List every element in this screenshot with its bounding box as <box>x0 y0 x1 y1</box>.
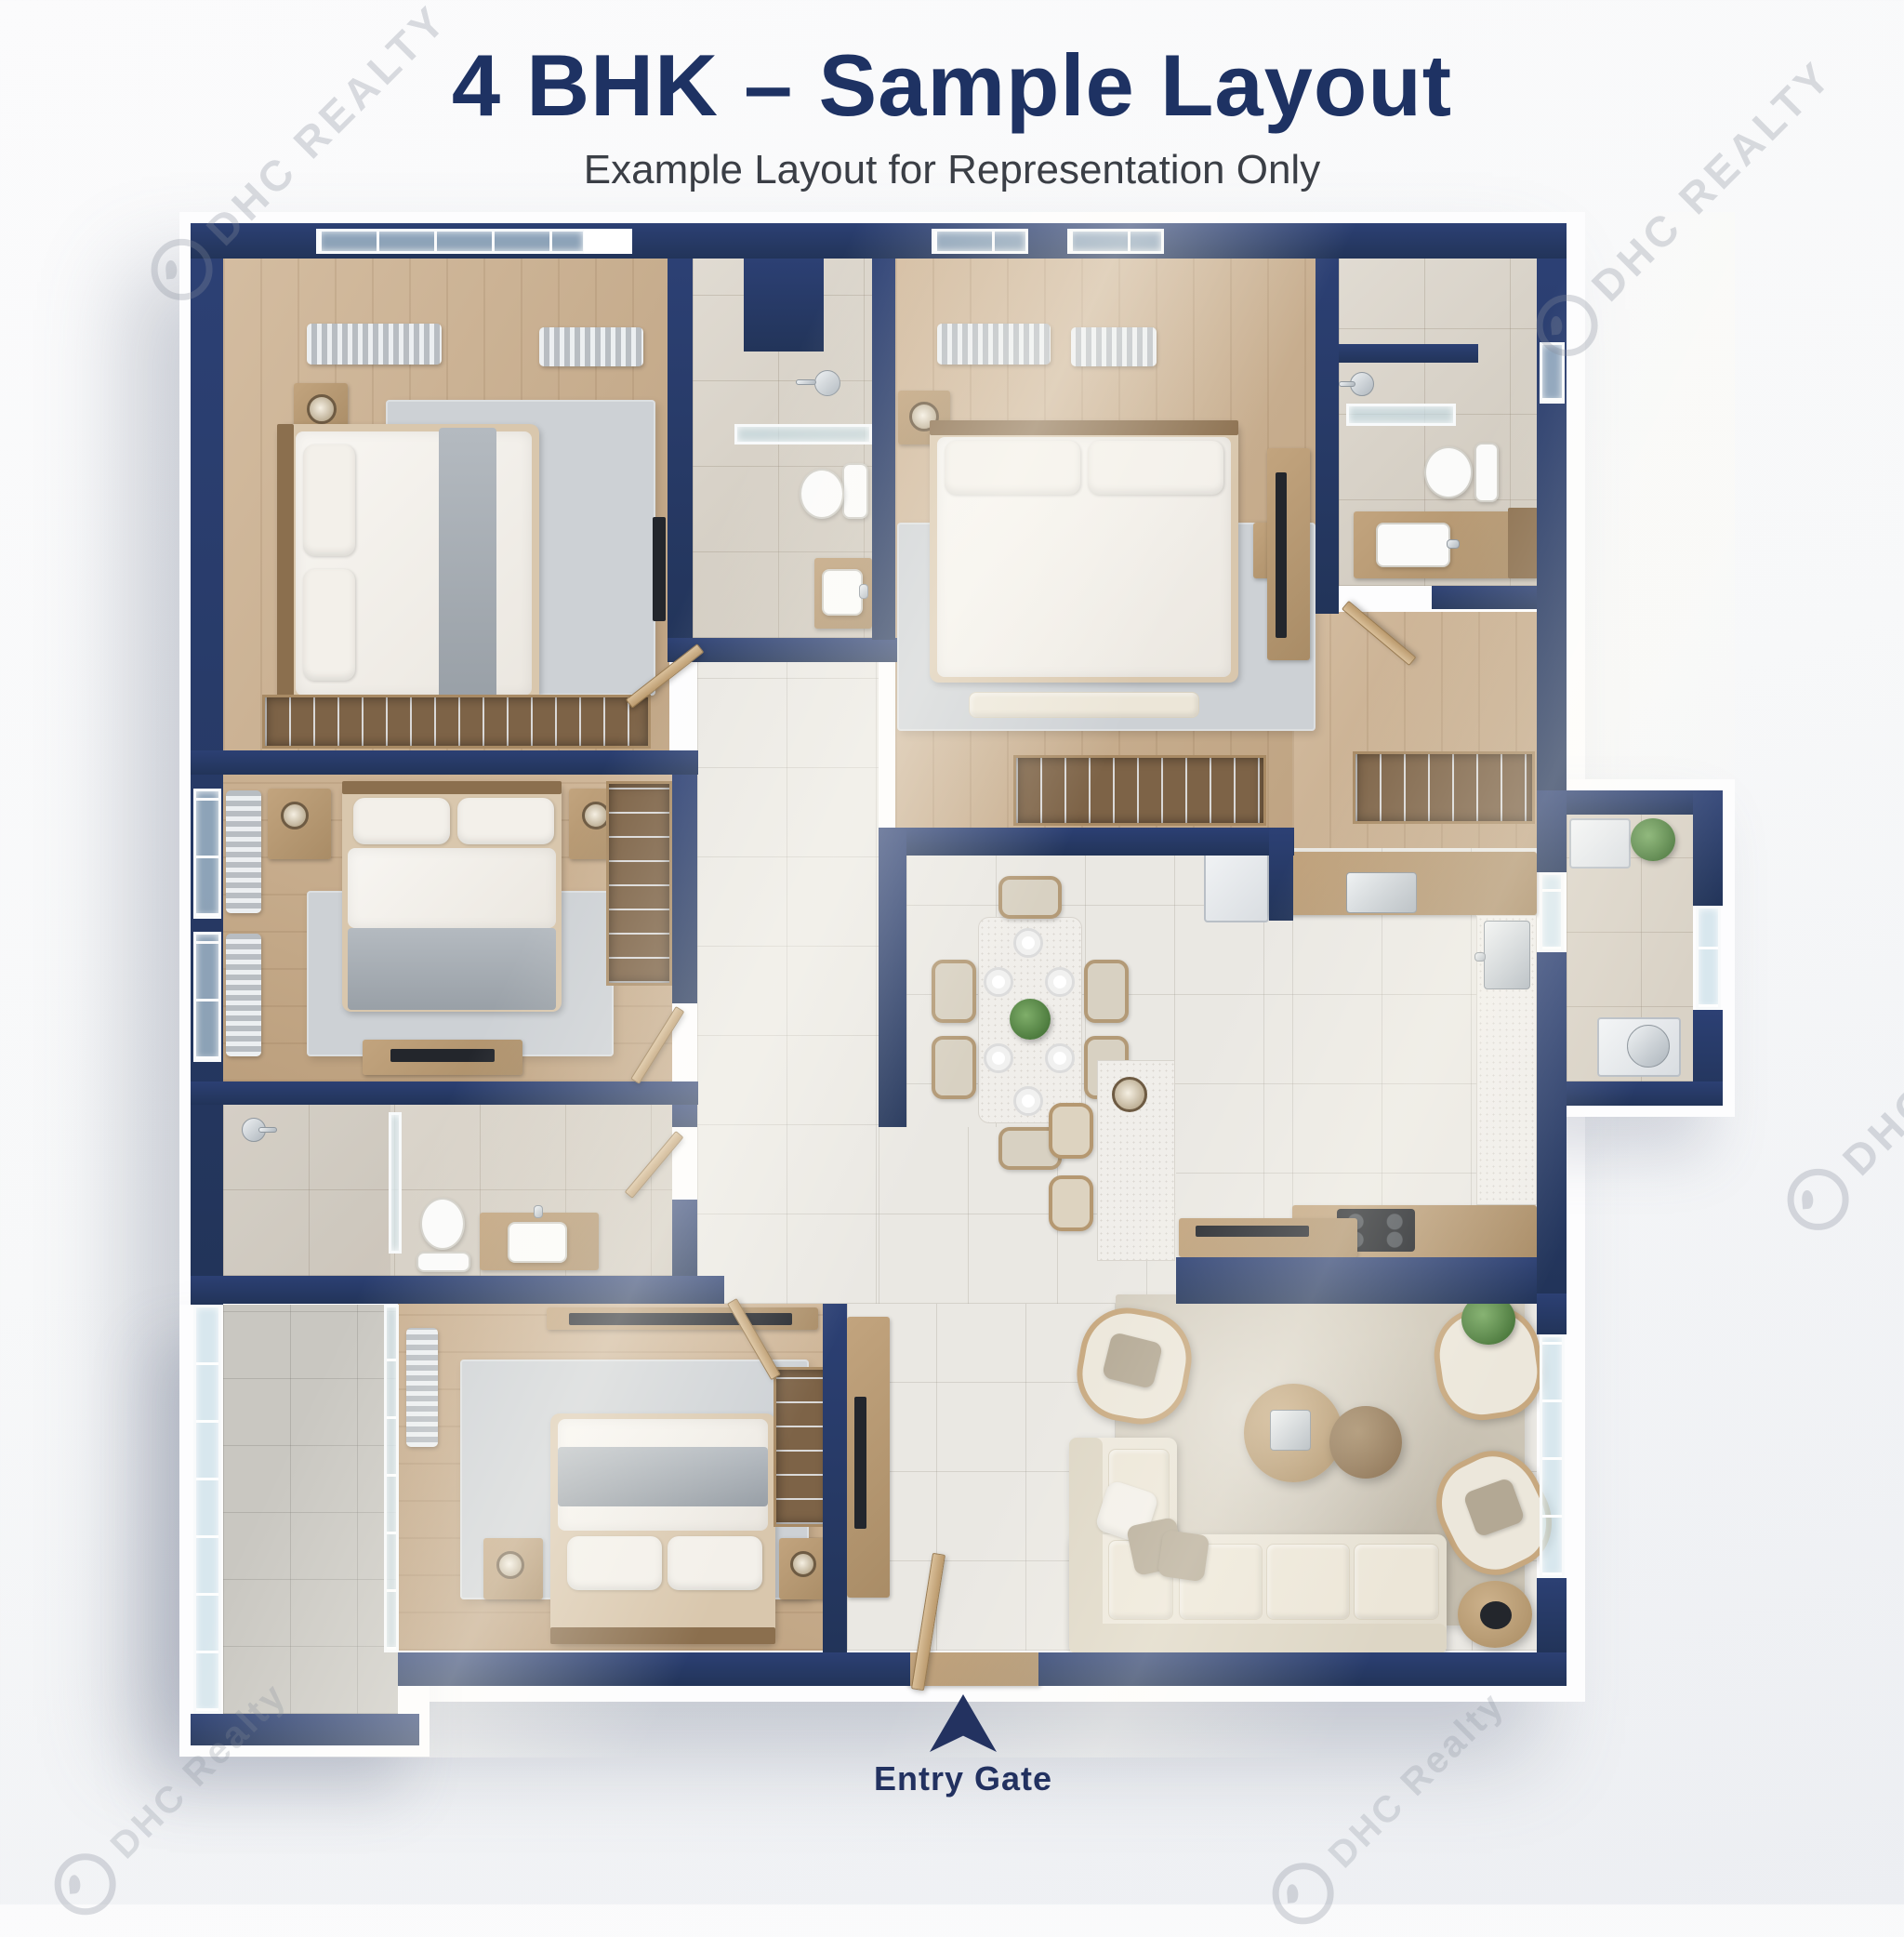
toilet-tank-bathroom-1 <box>842 463 868 519</box>
throw-bedroom-1 <box>439 428 496 699</box>
tv-unit-master <box>1267 448 1310 660</box>
sofa-pillow-3 <box>1157 1530 1210 1582</box>
wall-living-right-a <box>1537 1294 1567 1334</box>
balcony-partition-glass <box>384 1305 399 1652</box>
tv-bedroom-4 <box>569 1313 792 1325</box>
pillow-bedroom-1-b <box>303 569 355 681</box>
sideboard <box>1179 1218 1357 1257</box>
basin-bathroom-3 <box>508 1222 567 1263</box>
washing-machine-door <box>1627 1025 1670 1068</box>
wall-bath3-right-a <box>672 1105 697 1127</box>
wall-kitchen-utility-a <box>1537 790 1567 872</box>
curtain-master-right <box>1071 327 1157 366</box>
toilet-tank-bathroom-2 <box>1474 443 1499 502</box>
shower-arm-bathroom-3 <box>258 1127 277 1133</box>
utility-appliance <box>1569 818 1631 869</box>
window-bedroom-1 <box>316 229 586 254</box>
wall-left <box>191 259 223 1305</box>
window-bedroom-3-a <box>193 789 221 919</box>
wardrobe-bedroom-3 <box>606 781 672 986</box>
shower-arm-bathroom-1 <box>796 379 816 385</box>
wall-utility-right-a <box>1693 790 1723 906</box>
wall-kitchen-stub <box>1269 829 1293 921</box>
lamp-bedroom-1 <box>307 394 337 424</box>
wall-bedroom3-bottom <box>191 1081 698 1105</box>
wall-bath1-master <box>872 259 895 640</box>
bar-stool-1 <box>1049 1103 1093 1159</box>
dining-plate-4 <box>984 1043 1013 1073</box>
curtain-bedroom-3-b <box>226 934 261 1056</box>
floor-balcony <box>223 1305 398 1714</box>
wall-kitchen-bottom <box>1176 1257 1537 1304</box>
dining-chair-top <box>998 876 1062 919</box>
curtain-bedroom-3-a <box>226 790 261 913</box>
coffee-table-tray <box>1270 1410 1311 1451</box>
tv-console-foyer <box>847 1317 890 1598</box>
dining-plate-3 <box>1045 967 1075 997</box>
window-bedroom-3-b <box>193 932 221 1062</box>
toilet-bowl-bathroom-1 <box>800 469 844 519</box>
curtain-bedroom-4 <box>406 1328 438 1447</box>
window-kitchen-utility <box>1540 872 1564 952</box>
sofa-back-bottom <box>1069 1624 1447 1653</box>
throw-bedroom-4 <box>558 1447 768 1506</box>
basin-bathroom-1 <box>822 569 863 616</box>
wall-bath2-shower-stub <box>1339 344 1478 363</box>
curtain-master-left <box>937 324 1051 365</box>
dining-plate-2 <box>984 967 1013 997</box>
tv-living-room <box>854 1397 866 1529</box>
side-table-bowl <box>1480 1601 1512 1629</box>
window-master-a <box>932 229 1028 254</box>
shower-arm-bathroom-2 <box>1339 381 1355 387</box>
wall-bedroom1-bottom <box>191 750 698 775</box>
pillow-master-b <box>1088 441 1223 495</box>
curtain-bedroom-1-right <box>539 327 643 366</box>
shower-head-bathroom-1 <box>814 370 840 396</box>
sideboard-inset <box>1196 1226 1309 1237</box>
kitchen-faucet <box>1474 952 1486 962</box>
wall-bedroom3-right <box>672 775 697 1003</box>
dining-chair-left-1 <box>932 960 976 1023</box>
wall-master-bath2 <box>1316 259 1339 614</box>
faucet-bathroom-3 <box>534 1205 543 1218</box>
duct-bathroom-1 <box>744 259 824 352</box>
wall-gap-top <box>584 229 632 254</box>
pillow-bedroom-1-a <box>303 444 355 556</box>
sofa-seat-5 <box>1354 1544 1439 1620</box>
shower-shelf-bathroom-1 <box>734 424 872 444</box>
island-tray <box>1112 1077 1147 1112</box>
wall-bath3-right-b <box>672 1200 697 1276</box>
tv-bedroom-1 <box>653 517 666 621</box>
wall-living-right-b <box>1537 1578 1567 1652</box>
window-utility <box>1696 906 1721 1010</box>
toilet-bowl-bathroom-3 <box>420 1198 465 1250</box>
balcony-rail-glass <box>193 1305 221 1714</box>
pillow-bedroom-4-b <box>668 1536 762 1590</box>
wall-dining-top <box>879 828 1294 856</box>
lamp-bedroom-4-left <box>496 1551 524 1579</box>
dining-plate-1 <box>1013 928 1043 958</box>
pillow-bedroom-3-b <box>457 798 554 844</box>
bench-master <box>969 692 1199 718</box>
pillow-bedroom-3-a <box>353 798 450 844</box>
dining-plate-6 <box>1013 1086 1043 1116</box>
blanket-bedroom-3 <box>348 928 556 1010</box>
faucet-bathroom-1 <box>859 584 868 599</box>
toilet-bowl-bathroom-2 <box>1424 446 1473 498</box>
cabinet-bathroom-2 <box>1508 508 1538 578</box>
sofa-back-left <box>1069 1438 1103 1653</box>
wall-foyer-left <box>823 1304 847 1652</box>
dining-plate-5 <box>1045 1043 1075 1073</box>
wardrobe-dressing-b <box>1353 751 1535 824</box>
wall-bottom-living <box>1038 1652 1567 1686</box>
kitchen-sink <box>1484 921 1530 989</box>
headboard-bedroom-1 <box>277 424 294 703</box>
headboard-master <box>930 420 1238 435</box>
pillow-master-a <box>945 441 1080 495</box>
headboard-bedroom-4 <box>550 1627 775 1644</box>
bar-stool-2 <box>1049 1175 1093 1231</box>
shower-shelf-bathroom-2 <box>1346 404 1456 426</box>
wardrobe-bedroom-1 <box>262 695 651 749</box>
kitchen-appliance <box>1346 872 1417 913</box>
coffee-table-small <box>1329 1406 1402 1479</box>
entry-gate-label: Entry Gate <box>818 1759 1108 1798</box>
wall-kitchen-utility-b <box>1537 952 1567 1294</box>
wall-bottom-bedroom-4 <box>398 1652 910 1686</box>
wall-bedroom1-bath1 <box>668 259 693 660</box>
utility-plant <box>1631 818 1675 861</box>
tv-master <box>1276 472 1287 638</box>
dining-centerpiece-plant <box>1010 999 1051 1040</box>
basin-bathroom-2 <box>1376 523 1450 567</box>
shower-glass-bathroom-3 <box>389 1112 402 1254</box>
sheet-bedroom-3 <box>348 848 556 928</box>
headboard-bedroom-3 <box>342 781 562 794</box>
faucet-bathroom-2 <box>1447 539 1460 549</box>
wall-bath2-bottom <box>1432 586 1537 609</box>
wardrobe-dressing-a <box>1013 755 1266 826</box>
window-master-b <box>1067 229 1164 254</box>
dining-chair-right-1 <box>1084 960 1129 1023</box>
toilet-tank-bathroom-3 <box>416 1252 470 1272</box>
lamp-bedroom-4-right <box>790 1551 816 1577</box>
window-living-right <box>1540 1334 1565 1578</box>
sofa-seat-4 <box>1266 1544 1350 1620</box>
dining-chair-left-2 <box>932 1036 976 1099</box>
wall-dining-left <box>879 828 906 1127</box>
lamp-bedroom-3-left <box>281 802 309 829</box>
tv-bedroom-3 <box>390 1049 495 1062</box>
wall-bath3-bottom <box>191 1276 724 1304</box>
curtain-bedroom-1-left <box>307 324 442 365</box>
pillow-bedroom-4-a <box>567 1536 662 1590</box>
floor-corridor <box>697 660 879 1304</box>
